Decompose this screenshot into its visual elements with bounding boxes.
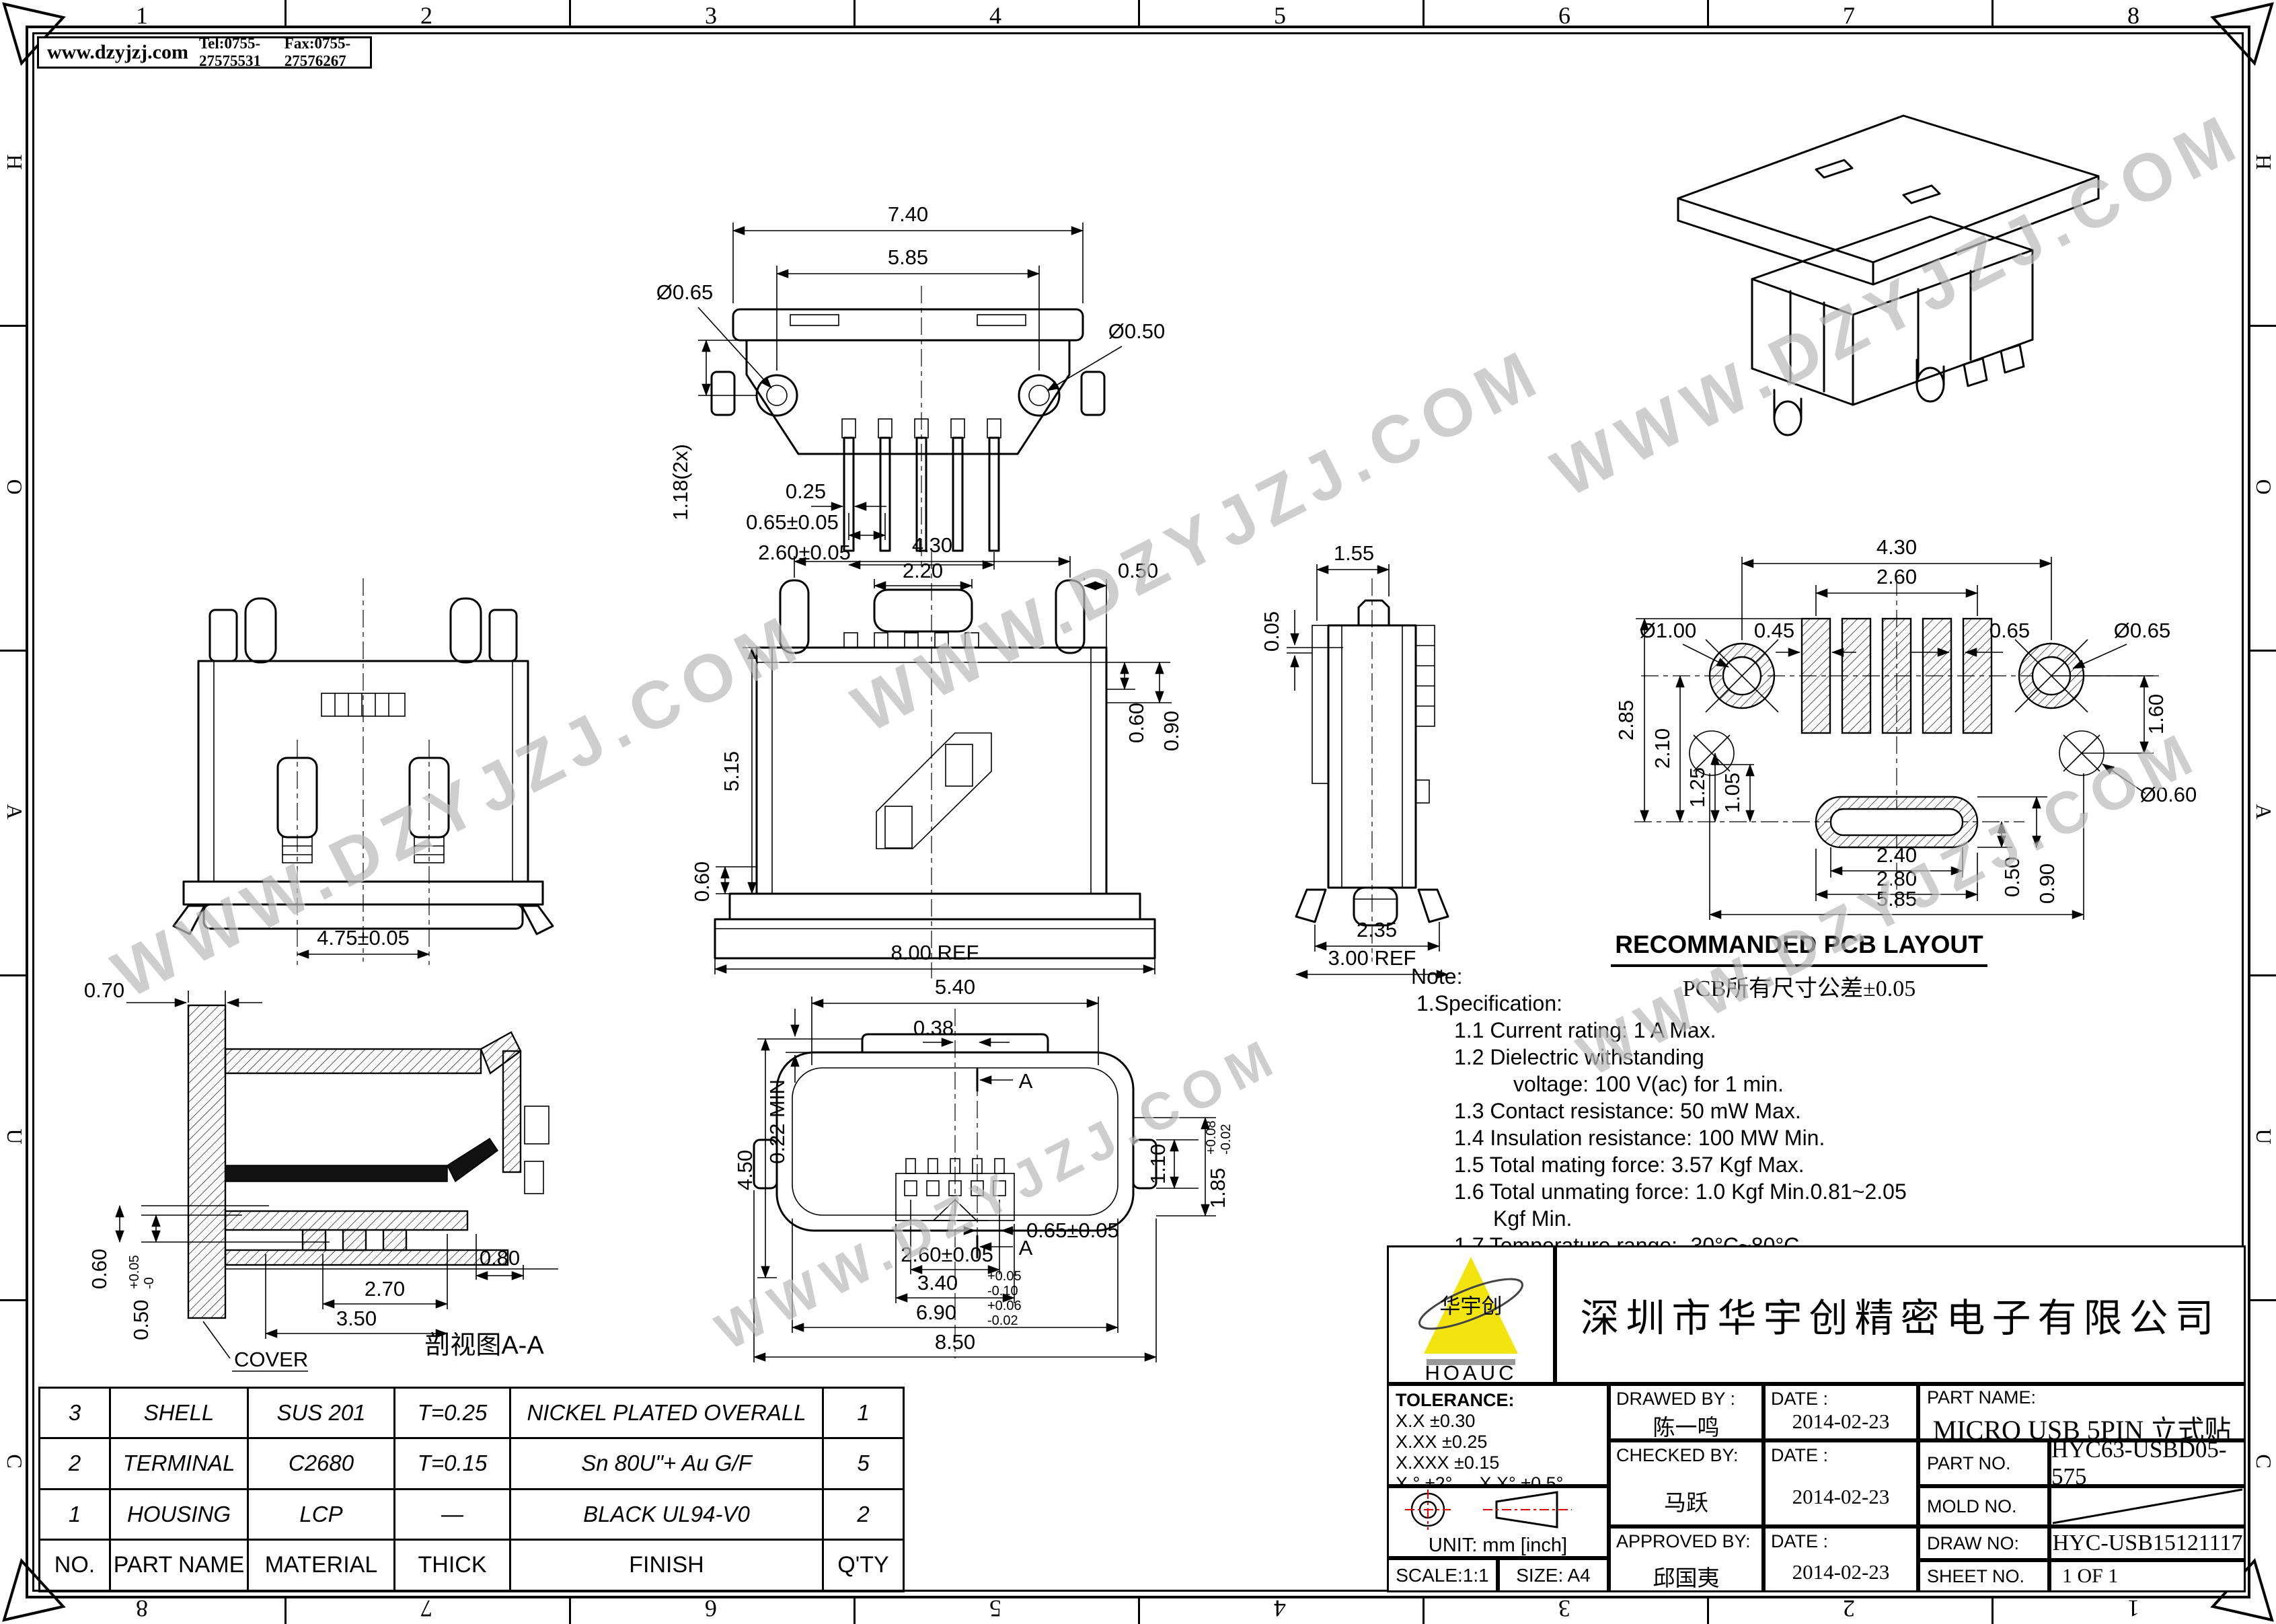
cell-finish: BLACK UL94-V0 — [510, 1489, 823, 1539]
tolerance-line: X.XXX ±0.15 — [1396, 1453, 1600, 1473]
engineering-drawing-sheet: 1 2 3 4 5 6 7 8 8 7 6 5 4 3 2 1 H O A U … — [0, 0, 2276, 1624]
dim-label: 1.85 — [1206, 1168, 1229, 1208]
dim-label: Ø1.00 — [1640, 619, 1696, 642]
side-view-drawing: 1.55 0.05 2.35 3.00 REF — [1248, 521, 1476, 985]
dim-label: 0.60 — [1125, 703, 1148, 743]
dim-label: 4.30 — [1876, 535, 1917, 559]
zone-tick — [284, 0, 287, 26]
zone-tick — [1422, 0, 1425, 26]
dim-label: 2.60 — [1876, 565, 1917, 588]
scale-value: SCALE:1:1 — [1396, 1565, 1489, 1586]
zone-letter-right: U — [2249, 1123, 2276, 1150]
fax-text: Fax:0755-27576267 — [284, 35, 362, 70]
zone-tick — [853, 0, 856, 26]
sheet-no-label-cell: SHEET NO. — [1918, 1560, 2049, 1592]
zone-number-bottom: 3 — [1541, 1594, 1588, 1623]
date-checked: 2014-02-23 — [1771, 1485, 1911, 1509]
dim-label: Ø0.50 — [1108, 319, 1165, 343]
size-cell: SIZE: A4 — [1498, 1558, 1609, 1592]
zone-tick — [1138, 1598, 1140, 1624]
zone-tick — [2250, 974, 2276, 976]
date-label: DATE : — [1771, 1445, 1911, 1466]
note-line: Kgf Min. — [1411, 1205, 2070, 1232]
zone-tick — [1138, 0, 1140, 26]
zone-tick — [1707, 1598, 1709, 1624]
note-line: 1.3 Contact resistance: 50 mW Max. — [1411, 1097, 2070, 1124]
projection-unit-cell: UNIT: mm [inch] — [1387, 1486, 1609, 1558]
cell-part-name: TERMINAL — [110, 1438, 248, 1489]
zone-tick — [1422, 1598, 1425, 1624]
dim-tol-upper: +0.06 — [987, 1299, 1022, 1313]
date-label: DATE : — [1771, 1389, 1911, 1409]
dim-label: 0.70 — [84, 978, 124, 1002]
header-no: NO. — [40, 1539, 110, 1591]
tolerance-label: TOLERANCE: — [1396, 1390, 1600, 1411]
dim-label: 0.60 — [87, 1249, 111, 1289]
zone-letter-left: O — [0, 473, 27, 500]
tel-text: Tel:0755-27575531 — [199, 35, 274, 70]
part-no-value: HYC63-USBD05-575 — [2051, 1440, 2244, 1486]
dim-label: 6.90 — [916, 1301, 956, 1324]
dim-label: 3.40 — [917, 1271, 958, 1294]
draw-no-label-cell: DRAW NO: — [1918, 1526, 2049, 1560]
sheet-no-value: 1 OF 1 — [2062, 1565, 2118, 1588]
zone-tick — [2250, 1299, 2276, 1301]
zone-tick — [853, 1598, 856, 1624]
mold-no-value-cell — [2049, 1486, 2246, 1526]
section-label: A — [1019, 1069, 1033, 1093]
approved-by-label: APPROVED BY: — [1616, 1531, 1756, 1552]
dim-label: 1.25 — [1685, 767, 1709, 808]
dim-label: 1.05 — [1720, 773, 1744, 813]
tolerance-line: X.XX ±0.25 — [1396, 1432, 1600, 1453]
zone-letter-right: A — [2249, 798, 2276, 825]
date-drawed-cell: DATE : 2014-02-23 — [1763, 1384, 1918, 1440]
tolerance-angle2: X.X° ±0.5° — [1479, 1473, 1563, 1486]
note-line: 1.1 Current rating: 1 A Max. — [1411, 1017, 2070, 1044]
title-block: 华宇创 HOAUC 深圳市华宇创精密电子有限公司 TOLERANCE: X.X … — [1387, 1245, 2246, 1592]
cell-part-name: HOUSING — [110, 1489, 248, 1539]
header-qty: Q'TY — [823, 1539, 904, 1591]
top-view-drawing: 7.40 5.85 Ø0.65 Ø0.50 1.18(2x) 0.25 0.65… — [639, 171, 1177, 575]
cell-finish: NICKEL PLATED OVERALL — [510, 1388, 823, 1438]
unit-label: UNIT: mm [inch] — [1389, 1535, 1607, 1557]
part-no-value-cell: HYC63-USBD05-575 — [2049, 1440, 2246, 1486]
header-finish: FINISH — [510, 1539, 823, 1591]
dim-label: 0.80 — [480, 1246, 520, 1270]
dim-label: 0.25 — [786, 479, 826, 503]
drawed-by-label: DRAWED BY : — [1616, 1389, 1756, 1409]
part-name-value: MICRO USB 5PIN 立式贴片 — [1927, 1408, 2237, 1440]
tolerance-line: X.X ±0.30 — [1396, 1411, 1600, 1432]
cell-qty: 2 — [823, 1489, 904, 1539]
dim-label: 0.38 — [913, 1016, 954, 1040]
zone-letter-left: H — [0, 149, 27, 176]
dim-label: 4.50 — [733, 1150, 757, 1190]
part-no-label-cell: PART NO. — [1918, 1440, 2049, 1486]
cover-label: COVER — [234, 1348, 308, 1371]
dim-tol-upper: +0.08 — [1204, 1120, 1219, 1155]
zone-tick — [284, 1598, 287, 1624]
date-label: DATE : — [1771, 1531, 1911, 1552]
cell-material: SUS 201 — [248, 1388, 395, 1438]
zone-tick — [1991, 0, 1994, 26]
zone-letter-right: C — [2249, 1448, 2276, 1475]
zone-number-bottom: 4 — [1256, 1594, 1303, 1623]
tolerance-angle: X.° ±2° — [1396, 1473, 1452, 1486]
company-name-cell: 深圳市华宇创精密电子有限公司 — [1555, 1245, 2246, 1384]
zone-letter-left: C — [0, 1448, 27, 1475]
mold-no-label: MOLD NO. — [1927, 1496, 2017, 1517]
dim-label: Ø0.65 — [2114, 619, 2170, 642]
zone-tick — [0, 974, 26, 976]
zone-tick — [0, 1299, 26, 1301]
zone-number-bottom: 2 — [1825, 1594, 1872, 1623]
approved-by-cell: APPROVED BY: 邱国夷 — [1609, 1526, 1763, 1592]
sheet-no-value-cell: 1 OF 1 — [2049, 1560, 2246, 1592]
zone-number-bottom: 5 — [972, 1594, 1019, 1623]
parts-table: 3 SHELL SUS 201 T=0.25 NICKEL PLATED OVE… — [38, 1387, 905, 1592]
dim-label: 5.40 — [935, 975, 975, 999]
dim-label: 2.85 — [1614, 700, 1638, 740]
dim-label: 4.75±0.05 — [317, 926, 410, 950]
part-no-label: PART NO. — [1927, 1453, 2011, 1474]
table-row: 2 TERMINAL C2680 T=0.15 Sn 80U"+ Au G/F … — [40, 1438, 904, 1489]
dim-label: 0.22 MIN — [765, 1079, 789, 1164]
header-contact-box: www.dzyjzj.com Tel:0755-27575531 Fax:075… — [37, 36, 372, 69]
sheet-no-label: SHEET NO. — [1927, 1566, 2024, 1587]
cell-thick: T=0.15 — [395, 1438, 510, 1489]
cell-no: 3 — [40, 1388, 110, 1438]
zone-number-bottom: 6 — [687, 1594, 734, 1623]
size-value: SIZE: A4 — [1516, 1565, 1591, 1586]
dim-label: 4.30 — [912, 533, 952, 557]
website-text: www.dzyjzj.com — [47, 41, 188, 64]
table-header-row: NO. PART NAME MATERIAL THICK FINISH Q'TY — [40, 1539, 904, 1591]
mold-no-blank-slash — [2051, 1488, 2244, 1524]
logo-cn-text: 华宇创 — [1440, 1294, 1503, 1318]
zone-number-bottom: 7 — [403, 1594, 450, 1623]
note-line: 1.4 Insulation resistance: 100 MW Min. — [1411, 1124, 2070, 1151]
dim-label: 2.10 — [1651, 728, 1674, 769]
section-view-title: 剖视图A-A — [424, 1331, 544, 1360]
logo-en-text: HOAUC — [1425, 1361, 1517, 1382]
dim-tol-lower: -0.02 — [1219, 1124, 1234, 1155]
date-drawed: 2014-02-23 — [1771, 1409, 1911, 1434]
scale-cell: SCALE:1:1 — [1387, 1558, 1498, 1592]
cell-no: 1 — [40, 1489, 110, 1539]
zone-letter-left: U — [0, 1123, 27, 1150]
header-thick: THICK — [395, 1539, 510, 1591]
draw-no-value-cell: HYC-USB15121117 — [2049, 1526, 2246, 1560]
mold-no-label-cell: MOLD NO. — [1918, 1486, 2049, 1526]
date-checked-cell: DATE : 2014-02-23 — [1763, 1440, 1918, 1526]
part-name-cell: PART NAME: MICRO USB 5PIN 立式贴片 — [1918, 1384, 2246, 1440]
dim-label: 2.35 — [1357, 918, 1397, 941]
header-part-name: PART NAME — [110, 1539, 248, 1591]
dim-label: 8.50 — [935, 1330, 975, 1354]
dim-label: 1.18(2x) — [669, 444, 692, 520]
dim-label: 0.65 — [1989, 619, 2030, 642]
zone-number-bottom: 1 — [2110, 1594, 2157, 1623]
first-angle-projection-icon — [1389, 1488, 1607, 1531]
cell-material: LCP — [248, 1489, 395, 1539]
dim-label-group: 0.50 +0.05 -0 — [127, 1255, 157, 1340]
zone-tick — [2250, 325, 2276, 327]
date-approved: 2014-02-23 — [1771, 1560, 1911, 1584]
dim-tol-lower: -0.10 — [987, 1284, 1018, 1299]
cell-qty: 5 — [823, 1438, 904, 1489]
table-row: 3 SHELL SUS 201 T=0.25 NICKEL PLATED OVE… — [40, 1388, 904, 1438]
zone-number-bottom: 8 — [118, 1594, 165, 1623]
company-logo-cell: 华宇创 HOAUC — [1387, 1245, 1555, 1384]
zone-tick — [2250, 650, 2276, 652]
section-view-drawing: COVER 0.70 0.60 0.50 +0.05 -0 2.70 3.50 … — [40, 965, 578, 1382]
zone-letter-right: O — [2249, 473, 2276, 500]
tolerance-cell: TOLERANCE: X.X ±0.30 X.XX ±0.25 X.XXX ±0… — [1387, 1384, 1609, 1486]
checked-by-label: CHECKED BY: — [1616, 1445, 1756, 1466]
dim-label: 0.45 — [1754, 619, 1794, 642]
header-material: MATERIAL — [248, 1539, 395, 1591]
dim-label: 1.55 — [1334, 541, 1374, 565]
dim-tol-upper: +0.05 — [127, 1255, 142, 1289]
dim-label: 3.00 REF — [1328, 946, 1416, 970]
drawed-by-cell: DRAWED BY : 陈一鸣 — [1609, 1384, 1763, 1440]
cell-material: C2680 — [248, 1438, 395, 1489]
zone-tick — [1707, 0, 1709, 26]
zone-tick — [0, 325, 26, 327]
dim-label: 0.05 — [1260, 611, 1283, 652]
zone-tick — [0, 650, 26, 652]
zone-tick — [569, 0, 571, 26]
dim-label: 0.65±0.05 — [1026, 1219, 1119, 1242]
cell-qty: 1 — [823, 1388, 904, 1438]
part-name-label: PART NAME: — [1927, 1387, 2237, 1408]
approved-by-name: 邱国夷 — [1616, 1560, 1756, 1592]
dim-label: 3.50 — [336, 1307, 377, 1330]
dim-tol-lower: -0 — [142, 1277, 157, 1289]
cell-no: 2 — [40, 1438, 110, 1489]
dim-label: 0.90 — [2035, 863, 2059, 904]
cell-thick: T=0.25 — [395, 1388, 510, 1438]
dim-tol-upper: +0.05 — [987, 1269, 1022, 1284]
date-approved-cell: DATE : 2014-02-23 — [1763, 1526, 1918, 1592]
draw-no-label: DRAW NO: — [1927, 1533, 2019, 1554]
note-line: 1.6 Total unmating force: 1.0 Kgf Min.0.… — [1411, 1178, 2070, 1205]
cell-finish: Sn 80U"+ Au G/F — [510, 1438, 823, 1489]
dim-label: 0.60 — [690, 861, 714, 902]
zone-letter-left: A — [0, 798, 27, 825]
checked-by-cell: CHECKED BY: 马跃 — [1609, 1440, 1763, 1526]
note-line: voltage: 100 V(ac) for 1 min. — [1411, 1071, 2070, 1097]
note-line: 1.2 Dielectric withstanding — [1411, 1044, 2070, 1071]
dim-tol-lower: -0.02 — [987, 1313, 1018, 1328]
company-logo: 华宇创 HOAUC — [1389, 1247, 1553, 1382]
dim-label: 0.50 — [129, 1300, 153, 1340]
dim-label: 5.85 — [888, 245, 928, 269]
dim-label: 0.90 — [1160, 711, 1183, 751]
dim-label: 7.40 — [888, 202, 928, 226]
cell-part-name: SHELL — [110, 1388, 248, 1438]
note-line: 1.5 Total mating force: 3.57 Kgf Max. — [1411, 1151, 2070, 1178]
cell-thick: — — [395, 1489, 510, 1539]
dim-label: 2.70 — [365, 1277, 405, 1301]
zone-tick — [1991, 1598, 1994, 1624]
company-name: 深圳市华宇创精密电子有限公司 — [1557, 1247, 2244, 1382]
draw-no-value: HYC-USB15121117 — [2053, 1531, 2243, 1556]
dim-label: 5.15 — [720, 751, 743, 791]
table-row: 1 HOUSING LCP — BLACK UL94-V0 2 — [40, 1489, 904, 1539]
zone-tick — [569, 1598, 571, 1624]
dim-label: 2.20 — [903, 559, 943, 582]
drawed-by-name: 陈一鸣 — [1616, 1409, 1756, 1440]
dim-label: Ø0.65 — [656, 280, 713, 304]
checked-by-name: 马跃 — [1616, 1485, 1756, 1517]
dim-label: 8.00 REF — [891, 941, 979, 964]
